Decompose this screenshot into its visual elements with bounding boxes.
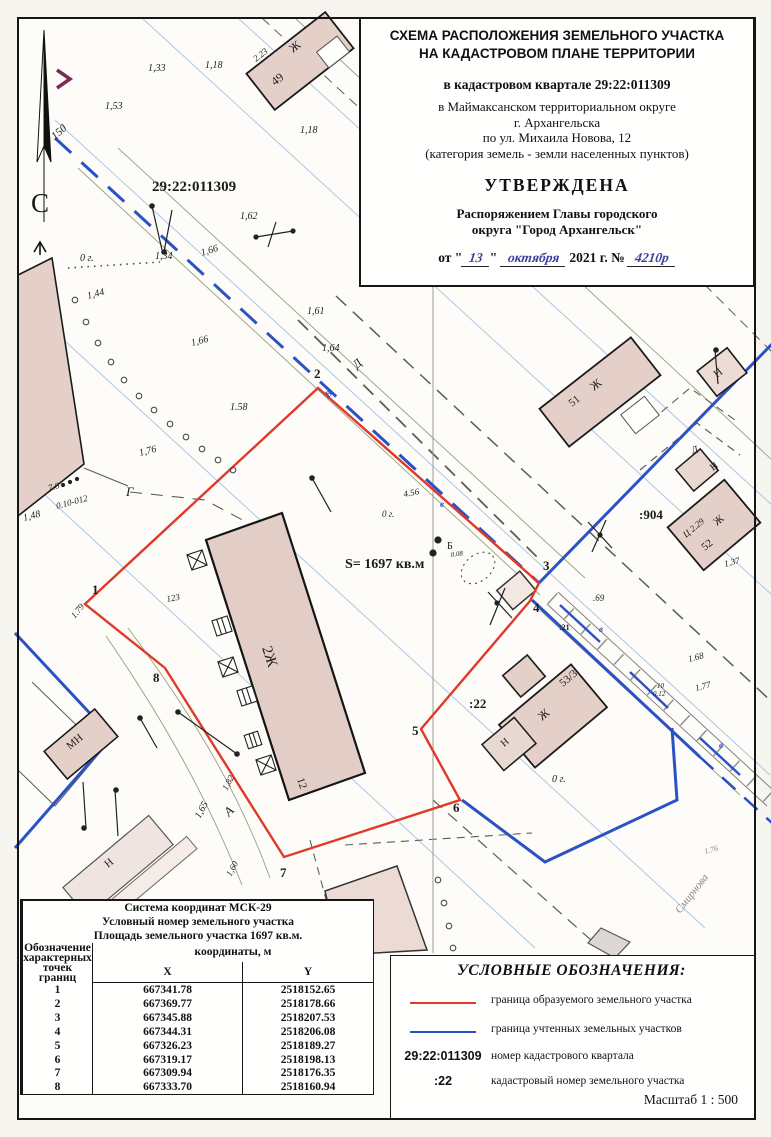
handwritten-day: 13 — [461, 250, 491, 267]
table-row: 6667319.172518198.13 — [23, 1053, 374, 1067]
map-label: 1,34 — [155, 251, 173, 262]
legend-item-label: граница учтенных земельных участков — [487, 1023, 682, 1035]
table-row: 8667333.702518160.94 — [23, 1080, 374, 1094]
title-block: СХЕМА РАСПОЛОЖЕНИЯ ЗЕМЕЛЬНОГО УЧАСТКА НА… — [359, 17, 755, 287]
approval-date-line: от "13" октября 2021 г. № 4210р — [361, 250, 753, 267]
points-column-header: Обозначение характерных точек границ — [23, 943, 93, 983]
approved-heading: УТВЕРЖДЕНА — [361, 175, 753, 196]
map-label: 29:22:011309 — [152, 179, 236, 195]
map-label: 7 — [280, 865, 287, 880]
map-label: 3 — [543, 558, 550, 573]
map-label: 10 — [657, 682, 665, 690]
map-label: 0 г. — [552, 774, 566, 785]
table-cell: 667326.23 — [93, 1039, 243, 1053]
map-label: 1,53 — [105, 101, 123, 112]
legend-item-quarter: 29:22:011309 номер кадастрового квартала — [399, 1049, 744, 1063]
address-line4: (категория земель - земли населенных пун… — [361, 146, 753, 162]
address-line3: по ул. Михаила Новова, 12 — [361, 130, 753, 146]
address-line1: в Маймаксанском территориальном округе — [361, 99, 753, 115]
table-row: 7667309.942518176.35 — [23, 1067, 374, 1081]
map-label: 1.58 — [230, 402, 248, 413]
table-cell: 2518189.27 — [243, 1039, 374, 1053]
date-year: 2021 г. № — [569, 250, 624, 265]
table-cell: 667319.17 — [93, 1053, 243, 1067]
map-label: 0.12 — [653, 690, 666, 698]
map-label: 0 г. — [80, 253, 94, 264]
legend-item-label: номер кадастрового квартала — [487, 1050, 634, 1062]
legend-item-label: кадастровый номер земельного участка — [487, 1075, 684, 1087]
table-cell: 4 — [23, 1025, 93, 1039]
date-prefix: от " — [438, 250, 462, 265]
legend-item-parcel: :22 кадастровый номер земельного участка — [399, 1074, 744, 1088]
table-cell: 2518178.66 — [243, 997, 374, 1011]
coordinates-table: Система координат МСК-29 Условный номер … — [22, 901, 374, 1095]
order-line2: округа "Город Архангельск" — [361, 222, 753, 238]
map-label: :904 — [639, 507, 663, 522]
map-label: С — [31, 188, 49, 218]
legend: УСЛОВНЫЕ ОБОЗНАЧЕНИЯ: граница образуемог… — [390, 955, 755, 1119]
table-cell: 2518206.08 — [243, 1025, 374, 1039]
table-cell: 3 — [23, 1011, 93, 1025]
map-label: 1,18 — [300, 125, 318, 136]
table-cell: 667369.77 — [93, 997, 243, 1011]
map-label: 1,18 — [205, 60, 223, 71]
table-cell: 667344.31 — [93, 1025, 243, 1039]
table-cell: 667333.70 — [93, 1080, 243, 1094]
table-cell: 8 — [23, 1080, 93, 1094]
table-row: 5667326.232518189.27 — [23, 1039, 374, 1053]
table-cell: 2518207.53 — [243, 1011, 374, 1025]
date-quote: " — [490, 250, 498, 265]
table-cell: 2518198.13 — [243, 1053, 374, 1067]
scheme-title-line1: СХЕМА РАСПОЛОЖЕНИЯ ЗЕМЕЛЬНОГО УЧАСТКА — [361, 27, 753, 45]
quarter-number: 29:22:011309 — [399, 1049, 487, 1063]
coord-system-header: Система координат МСК-29 — [23, 901, 374, 915]
area-header: Площадь земельного участка 1697 кв.м. — [23, 929, 374, 943]
table-cell: 667341.78 — [93, 983, 243, 997]
map-label: Г — [125, 484, 134, 499]
table-row: 1667341.782518152.65 — [23, 983, 374, 997]
scheme-title-line2: НА КАДАСТРОВОМ ПЛАНЕ ТЕРРИТОРИИ — [361, 45, 753, 63]
red-line-icon — [410, 1002, 476, 1004]
blue-line-icon — [410, 1031, 476, 1033]
table-cell: 2 — [23, 997, 93, 1011]
order-line1: Распоряжением Главы городского — [361, 206, 753, 222]
table-row: 3667345.882518207.53 — [23, 1011, 374, 1025]
map-label: 8 — [153, 670, 160, 685]
map-label: 1,62 — [240, 211, 258, 222]
y-column-header: Y — [243, 962, 374, 982]
map-label: S= 1697 кв.м — [345, 557, 425, 572]
map-label: 1,64 — [322, 343, 340, 354]
map-label: 1 — [92, 582, 99, 597]
map-label: 5 — [412, 723, 419, 738]
map-label: 1,61 — [307, 306, 325, 317]
quarter-line: в кадастровом квартале 29:22:011309 — [361, 77, 753, 93]
map-label: в — [599, 624, 603, 634]
table-row: 4667344.312518206.08 — [23, 1025, 374, 1039]
table-cell: 2518152.65 — [243, 983, 374, 997]
legend-title: УСЛОВНЫЕ ОБОЗНАЧЕНИЯ: — [399, 962, 744, 980]
table-cell: 2518176.35 — [243, 1067, 374, 1081]
table-row: 2667369.772518178.66 — [23, 997, 374, 1011]
table-cell: 6 — [23, 1053, 93, 1067]
handwritten-number: 4210р — [627, 250, 677, 267]
table-cell: 1 — [23, 983, 93, 997]
legend-item-formed: граница образуемого земельного участка — [399, 991, 744, 1009]
map-label: 0 г. — [382, 509, 394, 519]
table-cell: 7 — [23, 1067, 93, 1081]
map-label: в — [440, 499, 444, 509]
scale-label: Масштаб 1 : 500 — [644, 1092, 738, 1108]
table-cell: 2518160.94 — [243, 1080, 374, 1094]
cadastral-scheme-page: С15029:22:0113091,331,182.23Ж491,531,181… — [0, 0, 771, 1137]
table-cell: 5 — [23, 1039, 93, 1053]
map-label: 2 — [314, 366, 321, 381]
legend-item-label: граница образуемого земельного участка — [487, 994, 692, 1006]
coords-table-body: 1667341.782518152.652667369.772518178.66… — [23, 983, 374, 1095]
x-column-header: X — [93, 962, 243, 982]
handwritten-month: октября — [499, 250, 567, 267]
coordinates-block: Система координат МСК-29 Условный номер … — [20, 899, 374, 1095]
map-label: в — [719, 740, 723, 750]
coords-header: координаты, м — [93, 943, 374, 963]
legend-item-registered: граница учтенных земельных участков — [399, 1020, 744, 1038]
map-label: .69 — [593, 593, 605, 603]
map-label: 6 — [453, 800, 460, 815]
address-line2: г. Архангельска — [361, 115, 753, 131]
conditional-number-header: Условный номер земельного участка — [23, 915, 374, 929]
map-label: :22 — [469, 696, 486, 711]
parcel-number: :22 — [399, 1074, 487, 1088]
table-cell: 667309.94 — [93, 1067, 243, 1081]
map-label: 4 — [533, 600, 540, 615]
map-label: 1,33 — [148, 63, 166, 74]
table-cell: 667345.88 — [93, 1011, 243, 1025]
map-label: :21 — [559, 623, 570, 632]
